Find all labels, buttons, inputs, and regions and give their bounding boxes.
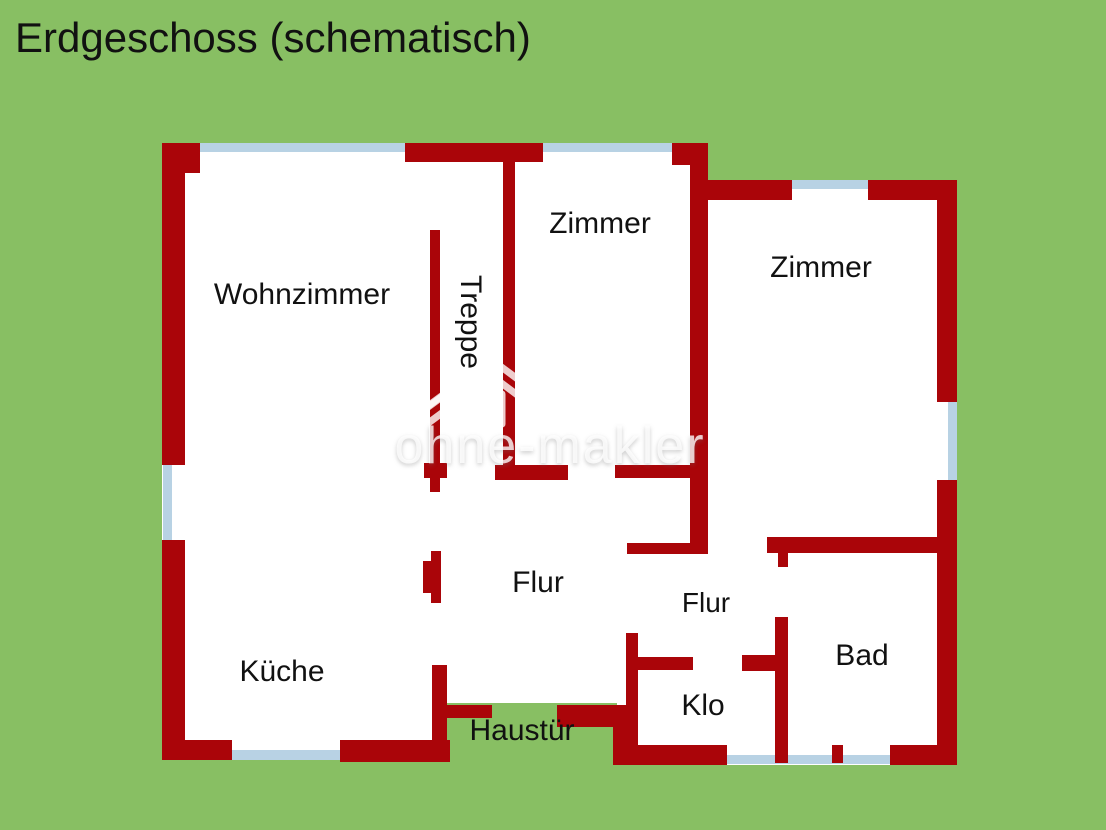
- wall: [937, 180, 957, 402]
- room-label-treppe: Treppe: [455, 275, 485, 369]
- wall: [423, 561, 431, 593]
- wall: [890, 745, 957, 765]
- window: [163, 465, 172, 540]
- room-label-wohnzimmer: Wohnzimmer: [214, 280, 390, 310]
- wall: [767, 537, 957, 553]
- wall: [431, 551, 441, 603]
- wall: [708, 180, 792, 200]
- floorplan-canvas: Erdgeschoss (schematisch): [0, 0, 1106, 830]
- wall: [162, 540, 185, 760]
- window: [792, 180, 868, 189]
- window: [200, 143, 405, 152]
- wall: [495, 465, 568, 480]
- wall: [162, 740, 232, 760]
- wall: [615, 465, 690, 478]
- room-label-flur-bad: Flur: [682, 589, 730, 617]
- wall: [627, 543, 708, 554]
- wall: [162, 143, 200, 173]
- wall: [340, 740, 450, 762]
- wall: [162, 143, 185, 465]
- room-label-klo: Klo: [681, 691, 724, 721]
- room-label-bad: Bad: [835, 641, 888, 671]
- wall: [430, 478, 440, 492]
- wall: [690, 143, 708, 553]
- room-label-flur-mitte: Flur: [512, 568, 564, 598]
- window: [948, 402, 957, 480]
- wall: [637, 657, 693, 670]
- floorplan: Wohnzimmer Treppe Zimmer Zimmer Flur Flu…: [0, 0, 1106, 830]
- wall: [832, 745, 843, 763]
- room-label-haustuer: Haustür: [469, 716, 574, 746]
- wall: [430, 230, 440, 465]
- window: [232, 750, 340, 760]
- wall: [424, 463, 447, 478]
- window: [543, 143, 672, 152]
- room-label-zimmer-mitte: Zimmer: [549, 209, 651, 239]
- wall: [778, 553, 788, 567]
- room-label-zimmer-rechts: Zimmer: [770, 253, 872, 283]
- wall: [503, 162, 515, 465]
- window: [727, 755, 890, 764]
- wall: [742, 655, 775, 671]
- wall: [937, 480, 957, 765]
- wall: [775, 617, 788, 763]
- room-label-kueche: Küche: [239, 657, 324, 687]
- wall: [405, 143, 543, 162]
